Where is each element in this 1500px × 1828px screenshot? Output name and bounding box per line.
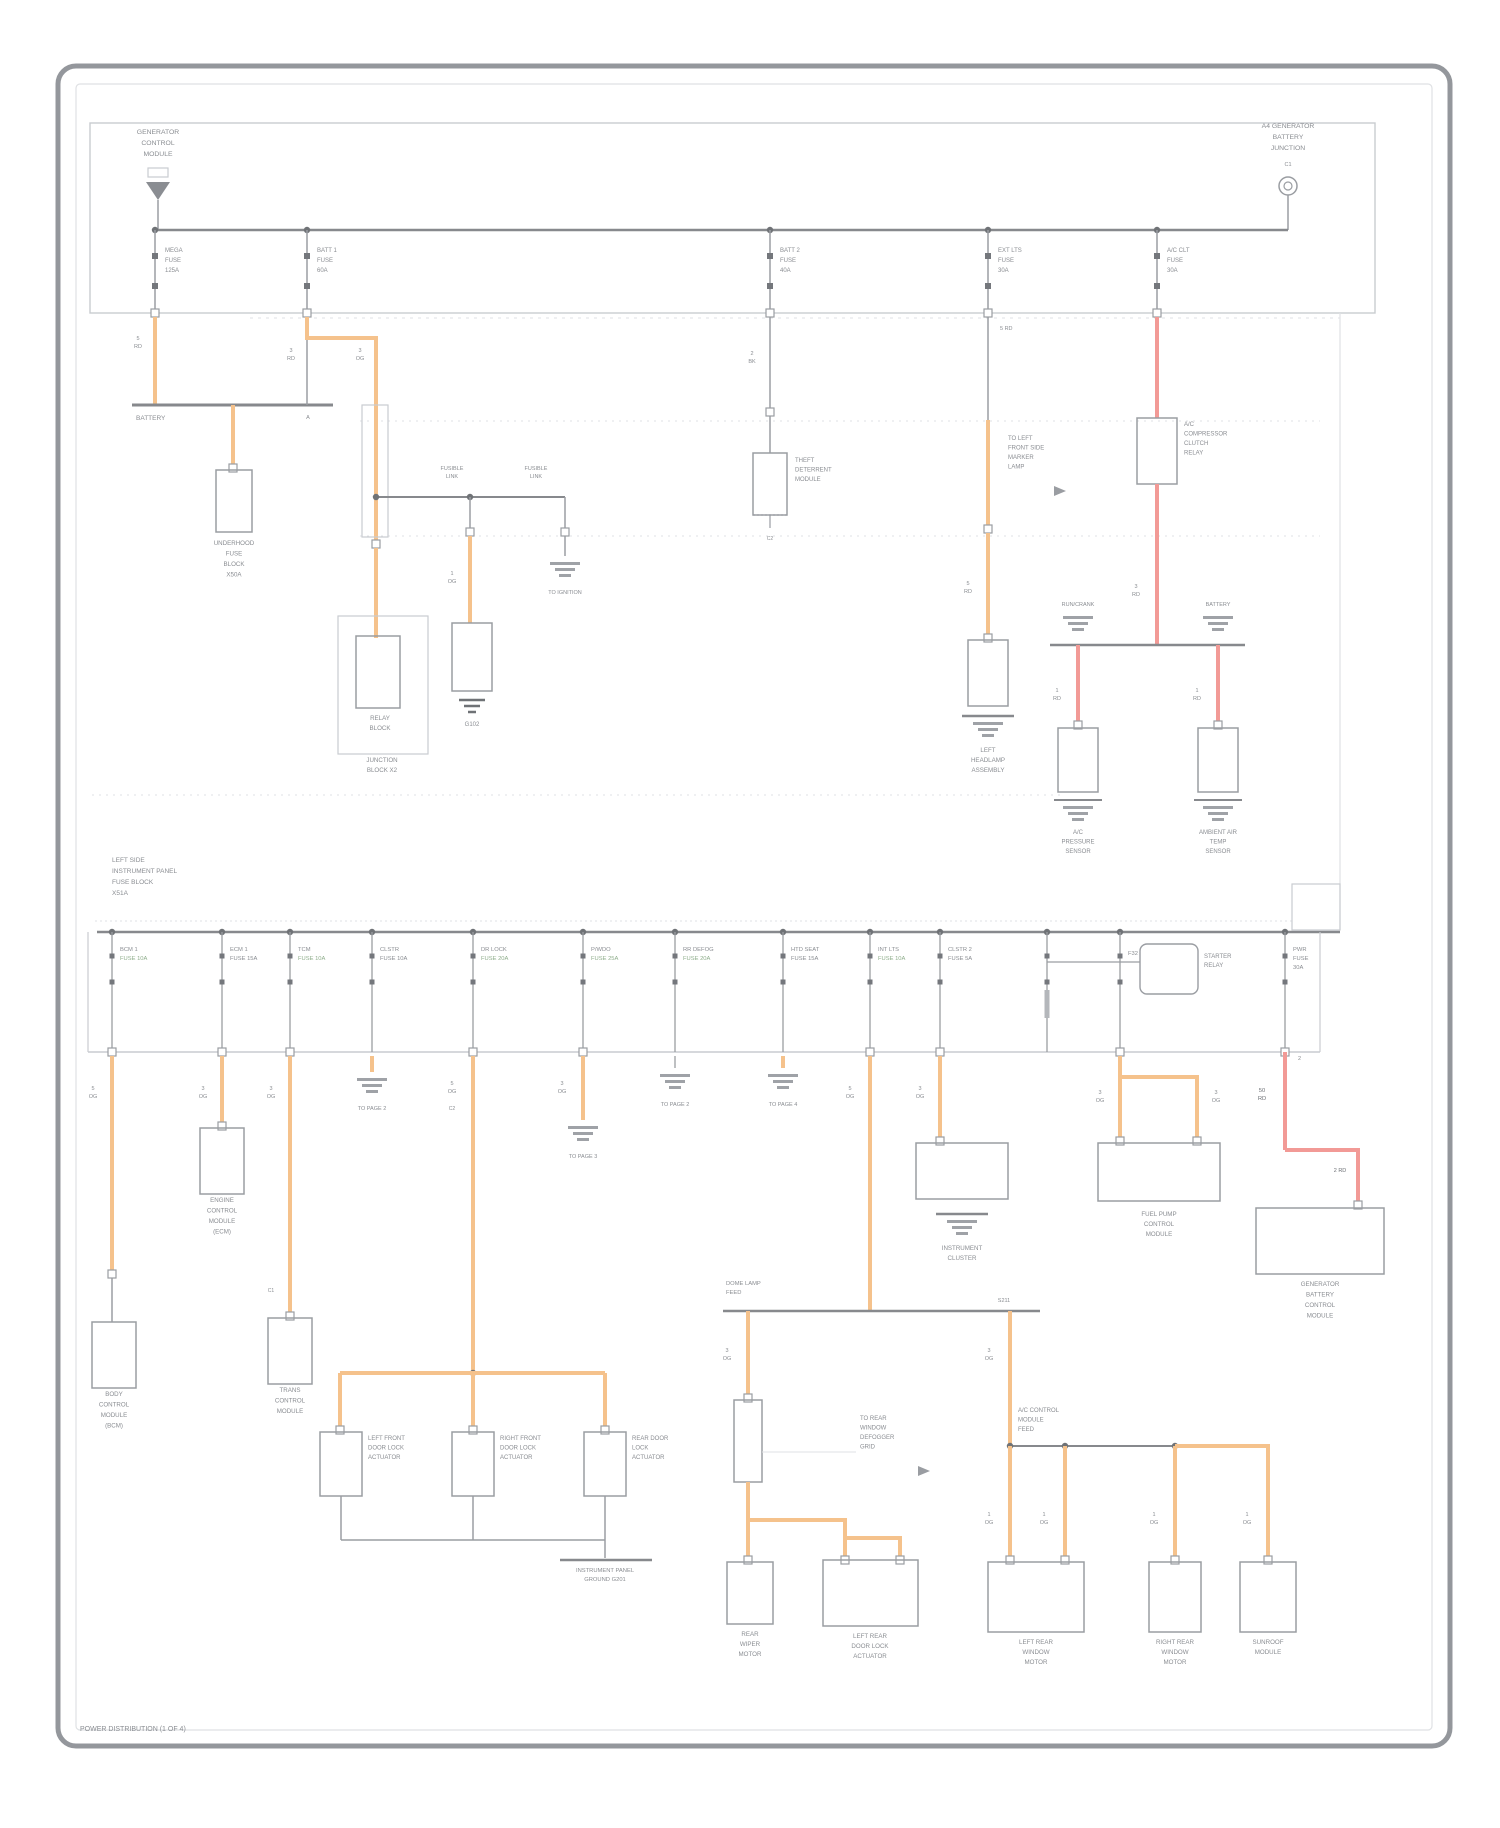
connector-terminal	[218, 1048, 226, 1056]
fusible-link-label: LINK	[530, 474, 543, 480]
continuation-arrow	[1063, 616, 1093, 619]
wire-label: 2	[750, 351, 753, 357]
fuse-label: DR LOCK	[481, 947, 507, 953]
battery-junction-label: JUNCTION	[1271, 145, 1305, 152]
wire-label: OG	[916, 1094, 925, 1100]
continuation-arrow	[773, 1080, 793, 1083]
wire-label: OG	[1243, 1520, 1252, 1526]
continuation-arrow	[665, 1080, 685, 1083]
wire-label: OG	[723, 1356, 732, 1362]
wire-label: 3	[201, 1086, 204, 1092]
fuse-label: TCM	[298, 947, 311, 953]
fuse-block-label: INSTRUMENT PANEL	[112, 868, 178, 875]
component-label: LOCK	[632, 1446, 648, 1452]
component-label: MODULE	[277, 1408, 303, 1415]
continuation-arrow	[768, 1074, 798, 1077]
continuation-arrow	[357, 1078, 387, 1081]
component-label: HEADLAMP	[971, 757, 1005, 764]
fuse-label: MEGA	[165, 248, 183, 254]
fuse-terminal	[581, 980, 586, 985]
wire-label: 2 RD	[1334, 1168, 1347, 1174]
ground-label: G102	[465, 722, 480, 728]
wire-label: OG	[356, 356, 365, 362]
fuse-terminal	[1118, 954, 1123, 959]
junction-dot	[373, 494, 379, 500]
continuation-arrow	[777, 1086, 789, 1089]
fuse-label: RR DEFOG	[683, 947, 714, 953]
continuation-arrow	[1063, 806, 1093, 809]
fuse-terminal	[581, 954, 586, 959]
component-label: CLUTCH	[1184, 441, 1208, 447]
fuse-label: FUSE	[1167, 258, 1183, 264]
wire-label: OG	[985, 1520, 994, 1526]
fuse-label: FUSE 20A	[481, 956, 509, 962]
splice-label: A/C CONTROL	[1018, 1408, 1060, 1414]
fuse-terminal	[1045, 954, 1050, 959]
component-label: BLOCK	[224, 561, 246, 568]
fuse-terminal	[471, 980, 476, 985]
wire-label: OG	[199, 1094, 208, 1100]
component-label: CLUSTER	[948, 1255, 977, 1262]
continuation-label: MARKER	[1008, 455, 1034, 461]
continuation-arrow	[1068, 812, 1088, 815]
continuation-arrow	[1212, 628, 1224, 631]
fuse-terminal	[985, 283, 991, 289]
fuse-terminal	[1118, 980, 1123, 985]
component-label: BLOCK X2	[367, 767, 398, 774]
wire-label: 2	[1298, 1056, 1301, 1062]
component-label: RIGHT FRONT	[500, 1436, 541, 1442]
continuation-label: GRID	[860, 1445, 876, 1451]
fuse-terminal	[288, 980, 293, 985]
fuse-label: FUSE 10A	[298, 956, 326, 962]
component-label: DETERRENT	[795, 468, 832, 474]
component-label: REAR	[741, 1631, 759, 1638]
wire-label: 3	[1098, 1090, 1101, 1096]
component-label: TEMP	[1210, 840, 1227, 846]
connector-terminal	[218, 1122, 226, 1130]
component-label: DOOR LOCK	[500, 1446, 536, 1452]
wire-label: 3	[560, 1081, 563, 1087]
fuse-label: FUSE 10A	[878, 956, 906, 962]
fuse-terminal	[1045, 980, 1050, 985]
component-label: REAR DOOR	[632, 1436, 669, 1442]
connector-terminal	[866, 1048, 874, 1056]
fuse-terminal	[673, 954, 678, 959]
wire-label: RD	[1258, 1096, 1266, 1102]
splice-label: RUN/CRANK	[1062, 602, 1095, 608]
ground-label: INSTRUMENT PANEL	[576, 1568, 635, 1574]
component-label: MODULE	[101, 1412, 127, 1419]
wire-label: RD	[1053, 696, 1061, 702]
connector-terminal	[229, 464, 237, 472]
component-label: CONTROL	[1305, 1302, 1336, 1309]
wire-label: 5	[848, 1086, 851, 1092]
page-footer-label: POWER DISTRIBUTION (1 OF 4)	[80, 1726, 186, 1733]
component-label: TRANS	[280, 1387, 301, 1394]
continuation-arrow	[366, 1090, 378, 1093]
component-label: CONTROL	[1144, 1221, 1175, 1228]
fuse-terminal	[938, 954, 943, 959]
wire-label: 1	[1245, 1512, 1248, 1518]
connector-terminal	[1153, 309, 1161, 317]
connector-terminal	[1006, 1556, 1014, 1564]
connector-terminal	[1193, 1137, 1201, 1145]
fuse-label: FUSE	[165, 258, 181, 264]
component-label: MODULE	[1255, 1649, 1281, 1656]
component-label: STARTER	[1204, 954, 1232, 960]
fuse-terminal	[781, 954, 786, 959]
fuse-terminal	[1283, 954, 1288, 959]
wire-label: OG	[1040, 1520, 1049, 1526]
connector-terminal	[744, 1556, 752, 1564]
scanned-wiring-page: POWER DISTRIBUTION (1 OF 4)GENERATORCONT…	[0, 0, 1500, 1828]
fuse-label: FUSE	[998, 258, 1014, 264]
connector-terminal	[303, 309, 311, 317]
fuse-terminal	[152, 283, 158, 289]
wire-label: 3	[725, 1348, 728, 1354]
connector-terminal	[936, 1048, 944, 1056]
wire-label: OG	[985, 1356, 994, 1362]
fuse-terminal	[1154, 253, 1160, 259]
component-label: BLOCK	[370, 725, 392, 732]
fuse-label: FUSE 10A	[120, 956, 148, 962]
connector-terminal	[1116, 1048, 1124, 1056]
wire-label: 3	[987, 1348, 990, 1354]
wire-label: OG	[448, 579, 457, 585]
component-label: DOOR LOCK	[368, 1446, 404, 1452]
component-label: ACTUATOR	[368, 1455, 401, 1461]
fuse-terminal	[370, 954, 375, 959]
continuation-arrow	[1203, 806, 1233, 809]
component-label: RIGHT REAR	[1156, 1639, 1195, 1646]
fuse-terminal	[471, 954, 476, 959]
wiring-diagram: POWER DISTRIBUTION (1 OF 4)GENERATORCONT…	[0, 0, 1500, 1828]
fuse-terminal	[152, 253, 158, 259]
label: A	[306, 415, 310, 421]
wire-label: 5	[136, 336, 139, 342]
continuation-arrow	[1068, 622, 1088, 625]
component-label: RELAY	[370, 715, 390, 722]
component-label: COMPRESSOR	[1184, 432, 1228, 438]
connector-terminal	[469, 1048, 477, 1056]
fuse-terminal	[868, 954, 873, 959]
component-label: CONTROL	[275, 1398, 306, 1405]
component-label: MOTOR	[1164, 1659, 1187, 1666]
connector-terminal	[984, 309, 992, 317]
component-label: GENERATOR	[1301, 1281, 1340, 1288]
continuation-label: WINDOW	[860, 1426, 887, 1432]
component-label: CONTROL	[99, 1402, 130, 1409]
continuation-label: TO PAGE 3	[569, 1154, 598, 1160]
component-label: ASSEMBLY	[972, 767, 1005, 774]
component-label: MODULE	[209, 1218, 235, 1225]
fuse-label: BATT 2	[780, 248, 800, 254]
continuation-label: TO REAR	[860, 1416, 887, 1422]
continuation-arrow	[660, 1074, 690, 1077]
connector-terminal	[469, 1426, 477, 1434]
continuation-arrow	[1212, 818, 1224, 821]
component-label: SENSOR	[1065, 849, 1091, 855]
connector-terminal	[766, 309, 774, 317]
continuation-arrow	[1072, 628, 1084, 631]
fuse-label: 30A	[998, 268, 1009, 274]
continuation-arrow	[956, 1232, 968, 1235]
component-label: AMBIENT AIR	[1199, 830, 1238, 836]
fuse-label: FUSE	[780, 258, 796, 264]
splice-label: MODULE	[1018, 1418, 1044, 1424]
wire-label: 50	[1259, 1088, 1265, 1094]
fuse-terminal	[110, 954, 115, 959]
ground-label: GROUND G201	[584, 1577, 626, 1583]
wire-label: OG	[558, 1089, 567, 1095]
component-label: WINDOW	[1161, 1649, 1188, 1656]
continuation-arrow	[1208, 812, 1228, 815]
component-label: MOTOR	[1025, 1659, 1048, 1666]
continuation-label: TO IGNITION	[548, 590, 582, 596]
wire-label: OG	[89, 1094, 98, 1100]
fuse-terminal	[1154, 283, 1160, 289]
component-label: LEFT REAR	[1019, 1639, 1053, 1646]
splice-label: FEED	[1018, 1427, 1035, 1433]
continuation-arrow	[362, 1084, 382, 1087]
fuse-label: 30A	[1293, 965, 1303, 971]
fusible-link-label: FUSIBLE	[441, 466, 464, 472]
component-label: JUNCTION	[366, 757, 397, 764]
fuse-label: BCM 1	[120, 947, 138, 953]
battery-label: BATTERY	[136, 415, 166, 422]
connector-terminal	[1116, 1137, 1124, 1145]
connector-terminal	[108, 1270, 116, 1278]
connector-terminal	[466, 528, 474, 536]
component-label: BATTERY	[1306, 1292, 1334, 1299]
connector-terminal	[984, 525, 992, 533]
continuation-arrow	[982, 734, 994, 737]
fuse-terminal	[938, 980, 943, 985]
component-label: UNDERHOOD	[214, 540, 255, 547]
fuse-label: F32	[1128, 951, 1138, 957]
fuse-label: ECM 1	[230, 947, 248, 953]
component-label: INSTRUMENT	[942, 1245, 983, 1252]
connector-terminal	[1061, 1556, 1069, 1564]
fuse-block-label: X51A	[112, 890, 129, 897]
fuse-label: FUSE	[317, 258, 333, 264]
splice-label: DOME LAMP	[726, 1281, 761, 1287]
component-label: LEFT	[980, 747, 995, 754]
wire-label: OG	[1096, 1098, 1105, 1104]
fuse-label: INT LTS	[878, 947, 899, 953]
component-label: SENSOR	[1205, 849, 1231, 855]
component-label: LEFT FRONT	[368, 1436, 405, 1442]
wire-label: 1	[987, 1512, 990, 1518]
continuation-arrow	[1072, 818, 1084, 821]
wire-label: OG	[448, 1089, 457, 1095]
generator-label: MODULE	[143, 151, 173, 158]
component-label: MODULE	[1307, 1313, 1333, 1320]
wire-label: 1	[1042, 1512, 1045, 1518]
continuation-arrow	[550, 562, 580, 565]
continuation-arrow	[568, 1126, 598, 1129]
fuse-label: P/WDO	[591, 947, 611, 953]
fuse-label: EXT LTS	[998, 248, 1022, 254]
fuse-terminal	[1283, 980, 1288, 985]
component-label: ACTUATOR	[500, 1455, 533, 1461]
component-label: DOOR LOCK	[851, 1643, 889, 1650]
component-label: ACTUATOR	[632, 1455, 665, 1461]
continuation-arrow	[1208, 622, 1228, 625]
wire-label: 1	[450, 571, 453, 577]
fuse-label: FUSE 15A	[230, 956, 258, 962]
fuse-label: CLSTR 2	[948, 947, 972, 953]
component-label: ENGINE	[210, 1197, 234, 1204]
fuse-label: 125A	[165, 268, 179, 274]
component-label: BODY	[105, 1391, 123, 1398]
wire-label: OG	[267, 1094, 276, 1100]
label: C2	[449, 1106, 456, 1112]
continuation-arrow	[1203, 616, 1233, 619]
fuse-block-label: FUSE BLOCK	[112, 879, 154, 886]
battery-junction-label: BATTERY	[1273, 134, 1304, 141]
continuation-label: TO PAGE 2	[358, 1106, 387, 1112]
fuse-label: PWR	[1293, 947, 1307, 953]
continuation-label: DEFOGGER	[860, 1435, 895, 1441]
wire-label: 3	[269, 1086, 272, 1092]
component-label: THEFT	[795, 458, 815, 464]
wire-label: OG	[846, 1094, 855, 1100]
wire-label: OG	[1150, 1520, 1159, 1526]
fuse-label: FUSE 10A	[380, 956, 408, 962]
fuse-terminal	[868, 980, 873, 985]
generator-label: GENERATOR	[137, 129, 180, 136]
continuation-arrow	[978, 728, 998, 731]
wire-label: BK	[748, 359, 756, 365]
wire-label: 3	[1134, 584, 1137, 590]
fuse-label: FUSE 5A	[948, 956, 972, 962]
fuse-terminal	[767, 253, 773, 259]
connector-terminal	[766, 408, 774, 416]
battery-junction-label: A4 GENERATOR	[1262, 123, 1315, 130]
component-label: MOTOR	[739, 1651, 762, 1658]
fuse-label: FUSE	[1293, 956, 1309, 962]
wire-label: 3	[1214, 1090, 1217, 1096]
continuation-arrow	[577, 1138, 589, 1141]
fuse-terminal	[767, 283, 773, 289]
component-label: LEFT REAR	[853, 1633, 887, 1640]
fuse-terminal	[370, 980, 375, 985]
connector-terminal	[744, 1394, 752, 1402]
connector-terminal	[286, 1048, 294, 1056]
connector-terminal	[336, 1426, 344, 1434]
wire-label: RD	[1193, 696, 1201, 702]
continuation-arrow	[559, 574, 571, 577]
component-label: RELAY	[1184, 451, 1203, 457]
component-label: ACTUATOR	[853, 1653, 887, 1660]
fuse-terminal	[673, 980, 678, 985]
generator-label: CONTROL	[141, 140, 174, 147]
component-label: FUSE	[226, 551, 243, 558]
fuse-block-label: LEFT SIDE	[112, 857, 145, 864]
continuation-arrow	[973, 722, 1003, 725]
continuation-arrow	[952, 1226, 972, 1229]
fuse-terminal	[220, 954, 225, 959]
connector-terminal	[936, 1137, 944, 1145]
wire-label: RD	[964, 589, 972, 595]
fuse-terminal	[220, 980, 225, 985]
splice-label: FEED	[726, 1290, 741, 1296]
connector-terminal	[108, 1048, 116, 1056]
fuse-terminal	[304, 253, 310, 259]
connector-terminal	[579, 1048, 587, 1056]
component-label: FUEL PUMP	[1141, 1211, 1176, 1218]
continuation-arrow	[573, 1132, 593, 1135]
fuse-label: HTD SEAT	[791, 947, 820, 953]
wire-label: 1	[1152, 1512, 1155, 1518]
connector-terminal	[372, 540, 380, 548]
fuse-terminal	[110, 980, 115, 985]
component-label: A/C	[1184, 422, 1195, 428]
wire-label: RD	[134, 344, 142, 350]
fuse-label: FUSE 20A	[683, 956, 711, 962]
component-label: X50A	[226, 572, 242, 579]
fuse-label: 30A	[1167, 268, 1178, 274]
component-label: WINDOW	[1022, 1649, 1049, 1656]
connector-terminal	[561, 528, 569, 536]
continuation-arrow	[947, 1220, 977, 1223]
fuse-label: A/C CLT	[1167, 248, 1190, 254]
fuse-label: 60A	[317, 268, 328, 274]
component-label: MODULE	[795, 477, 821, 483]
label: C2	[767, 536, 774, 542]
wire-label: OG	[1212, 1098, 1221, 1104]
continuation-label: TO LEFT	[1008, 436, 1033, 442]
fuse-terminal	[304, 283, 310, 289]
connector-terminal	[1264, 1556, 1272, 1564]
fuse-terminal	[288, 954, 293, 959]
label: C1	[1284, 162, 1291, 168]
wire-label: 1	[1055, 688, 1058, 694]
component-label: MODULE	[1146, 1231, 1172, 1238]
component-label: (ECM)	[213, 1229, 231, 1236]
wire-label: 1	[1195, 688, 1198, 694]
connector-terminal	[1171, 1556, 1179, 1564]
wire-label: 5	[450, 1081, 453, 1087]
component-label: CONTROL	[207, 1208, 238, 1215]
wire-label: 5 RD	[1000, 326, 1013, 332]
continuation-label: TO PAGE 4	[769, 1102, 798, 1108]
fuse-terminal	[985, 253, 991, 259]
wire-label: RD	[287, 356, 295, 362]
label: C1	[268, 1288, 275, 1294]
fuse-label: CLSTR	[380, 947, 399, 953]
wire-label: 3	[289, 348, 292, 354]
component-label: A/C	[1073, 830, 1084, 836]
component-label: PRESSURE	[1061, 840, 1094, 846]
wire-label: 3	[918, 1086, 921, 1092]
continuation-arrow	[669, 1086, 681, 1089]
wire-label: RD	[1132, 592, 1140, 598]
wire-label: 5	[91, 1086, 94, 1092]
wire-label: 5	[966, 581, 969, 587]
splice-label: BATTERY	[1206, 602, 1231, 608]
continuation-label: FRONT SIDE	[1008, 446, 1044, 452]
fusible-link-label: LINK	[446, 474, 459, 480]
fuse-label: 40A	[780, 268, 791, 274]
component-label: WIPER	[740, 1641, 761, 1648]
connector-terminal	[984, 634, 992, 642]
fusible-link-label: FUSIBLE	[525, 466, 548, 472]
component-label: RELAY	[1204, 963, 1223, 969]
component-label: (BCM)	[105, 1423, 123, 1430]
